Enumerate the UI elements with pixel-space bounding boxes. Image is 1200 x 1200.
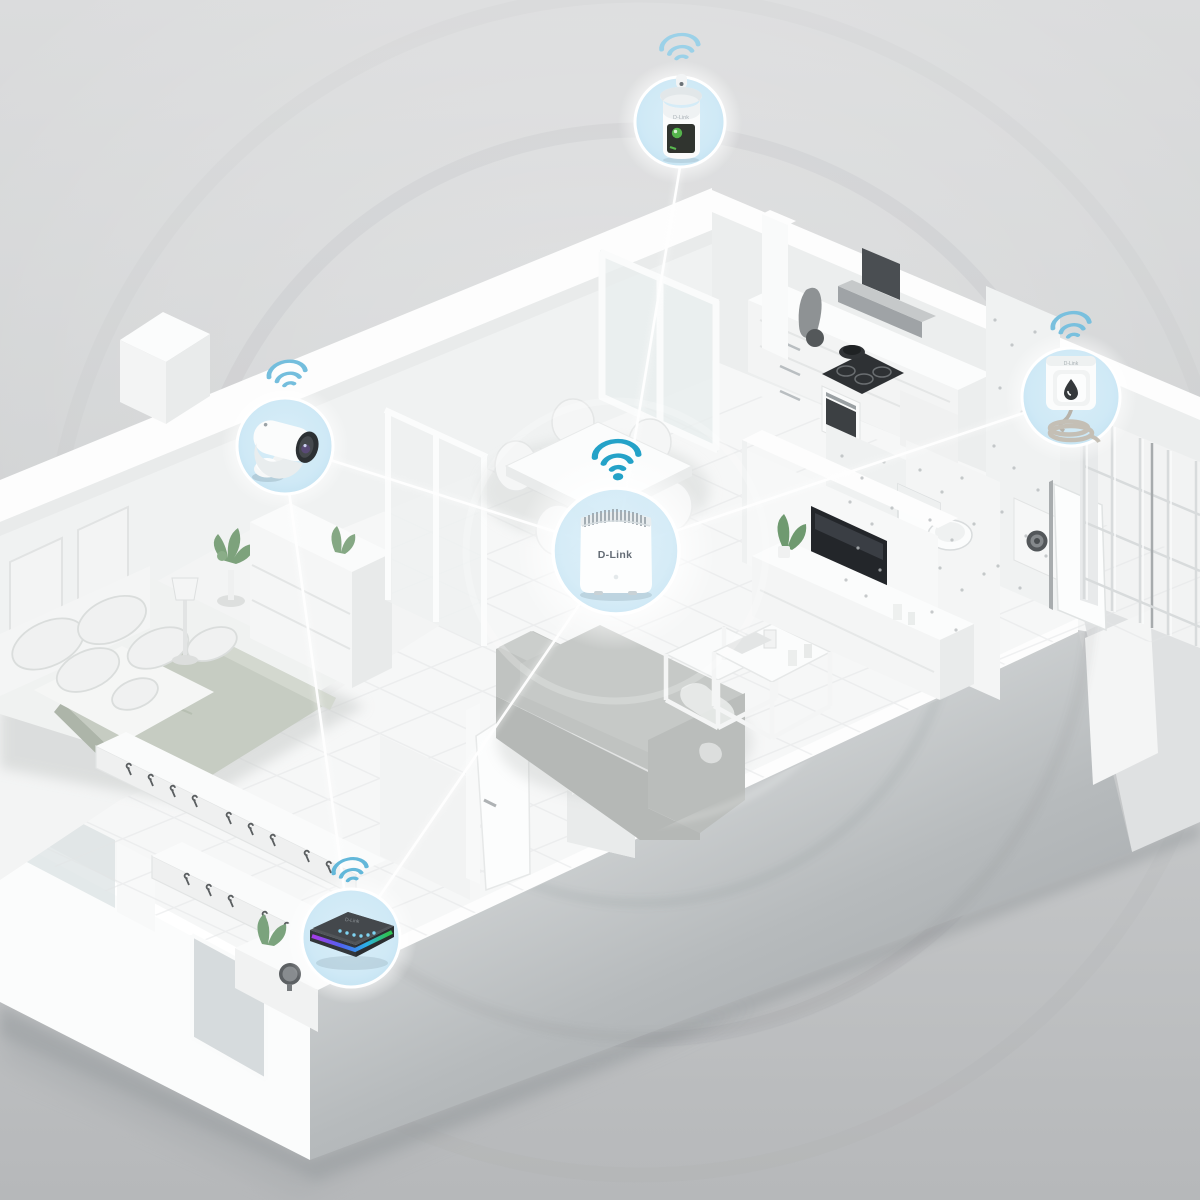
svg-text:D-Link: D-Link [598,549,632,561]
svg-text:D-Link: D-Link [1064,361,1079,367]
svg-text:D-Link: D-Link [673,115,689,121]
